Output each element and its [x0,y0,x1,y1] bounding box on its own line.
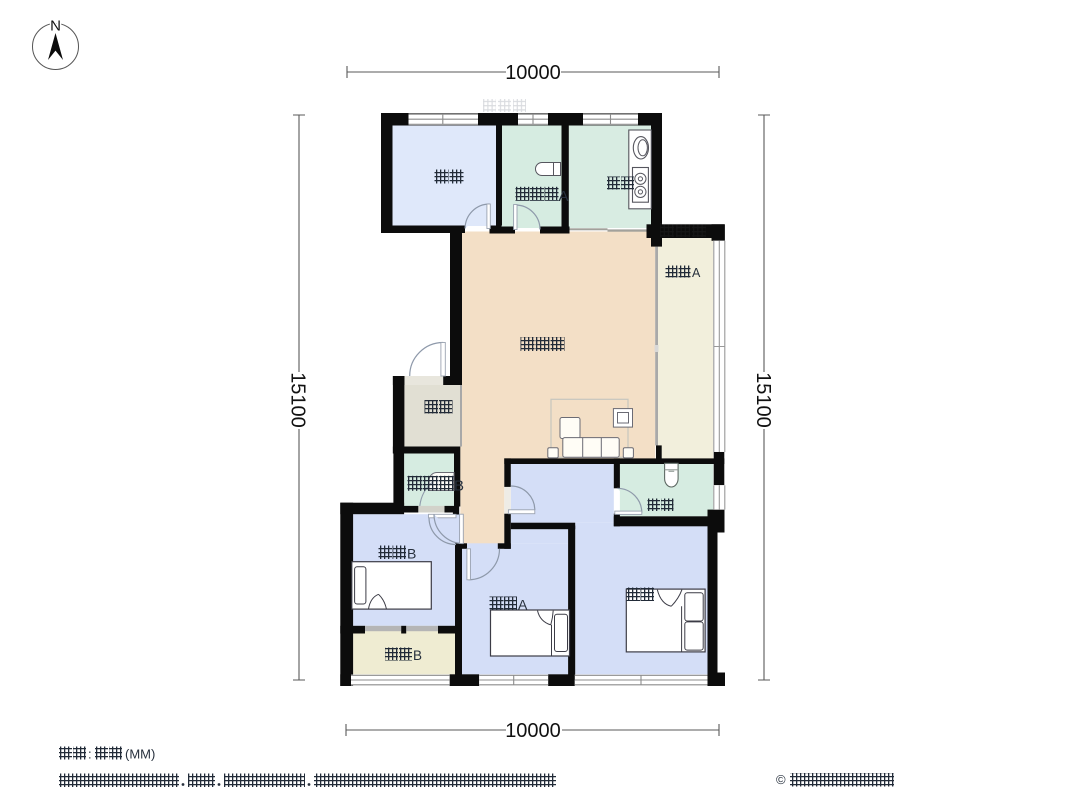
svg-text:A: A [559,188,569,205]
svg-text:A: A [518,597,528,613]
svg-text:10000: 10000 [505,62,561,84]
svg-text:(MM): (MM) [125,747,155,762]
svg-text:B: B [454,478,464,495]
svg-text:©: © [776,772,786,787]
svg-text:10000: 10000 [505,720,561,742]
svg-text::: : [88,747,92,762]
svg-text:N: N [50,18,61,35]
svg-text:15100: 15100 [752,372,774,428]
svg-text:B: B [407,546,416,562]
svg-text:15100: 15100 [287,372,309,428]
svg-text:B: B [413,648,422,663]
svg-text:A: A [692,266,701,280]
